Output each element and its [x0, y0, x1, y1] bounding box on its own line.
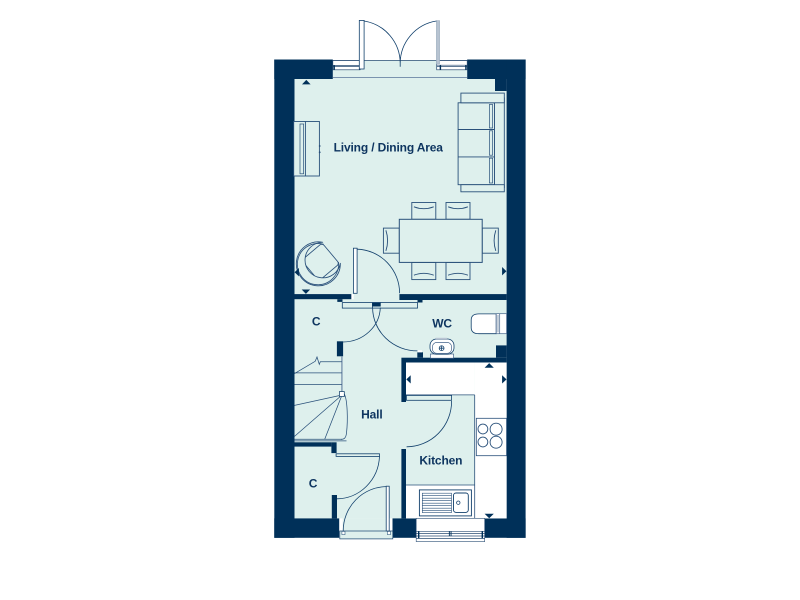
svg-text:Living / Dining Area: Living / Dining Area	[334, 140, 444, 154]
svg-text:Kitchen: Kitchen	[419, 454, 462, 468]
svg-text:Hall: Hall	[361, 407, 382, 421]
svg-text:C: C	[309, 476, 318, 490]
svg-text:WC: WC	[432, 316, 452, 330]
svg-text:C: C	[312, 315, 321, 329]
